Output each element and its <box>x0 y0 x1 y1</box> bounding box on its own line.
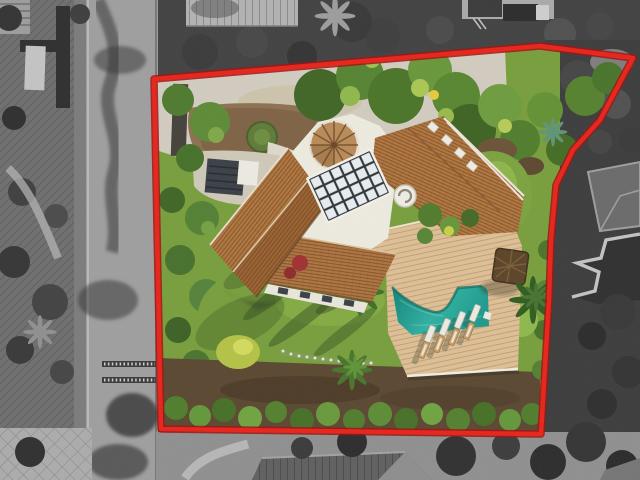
aerial-photo <box>0 0 640 480</box>
photo-grain-overlay <box>0 0 640 480</box>
aerial-photo-canvas <box>0 0 640 480</box>
